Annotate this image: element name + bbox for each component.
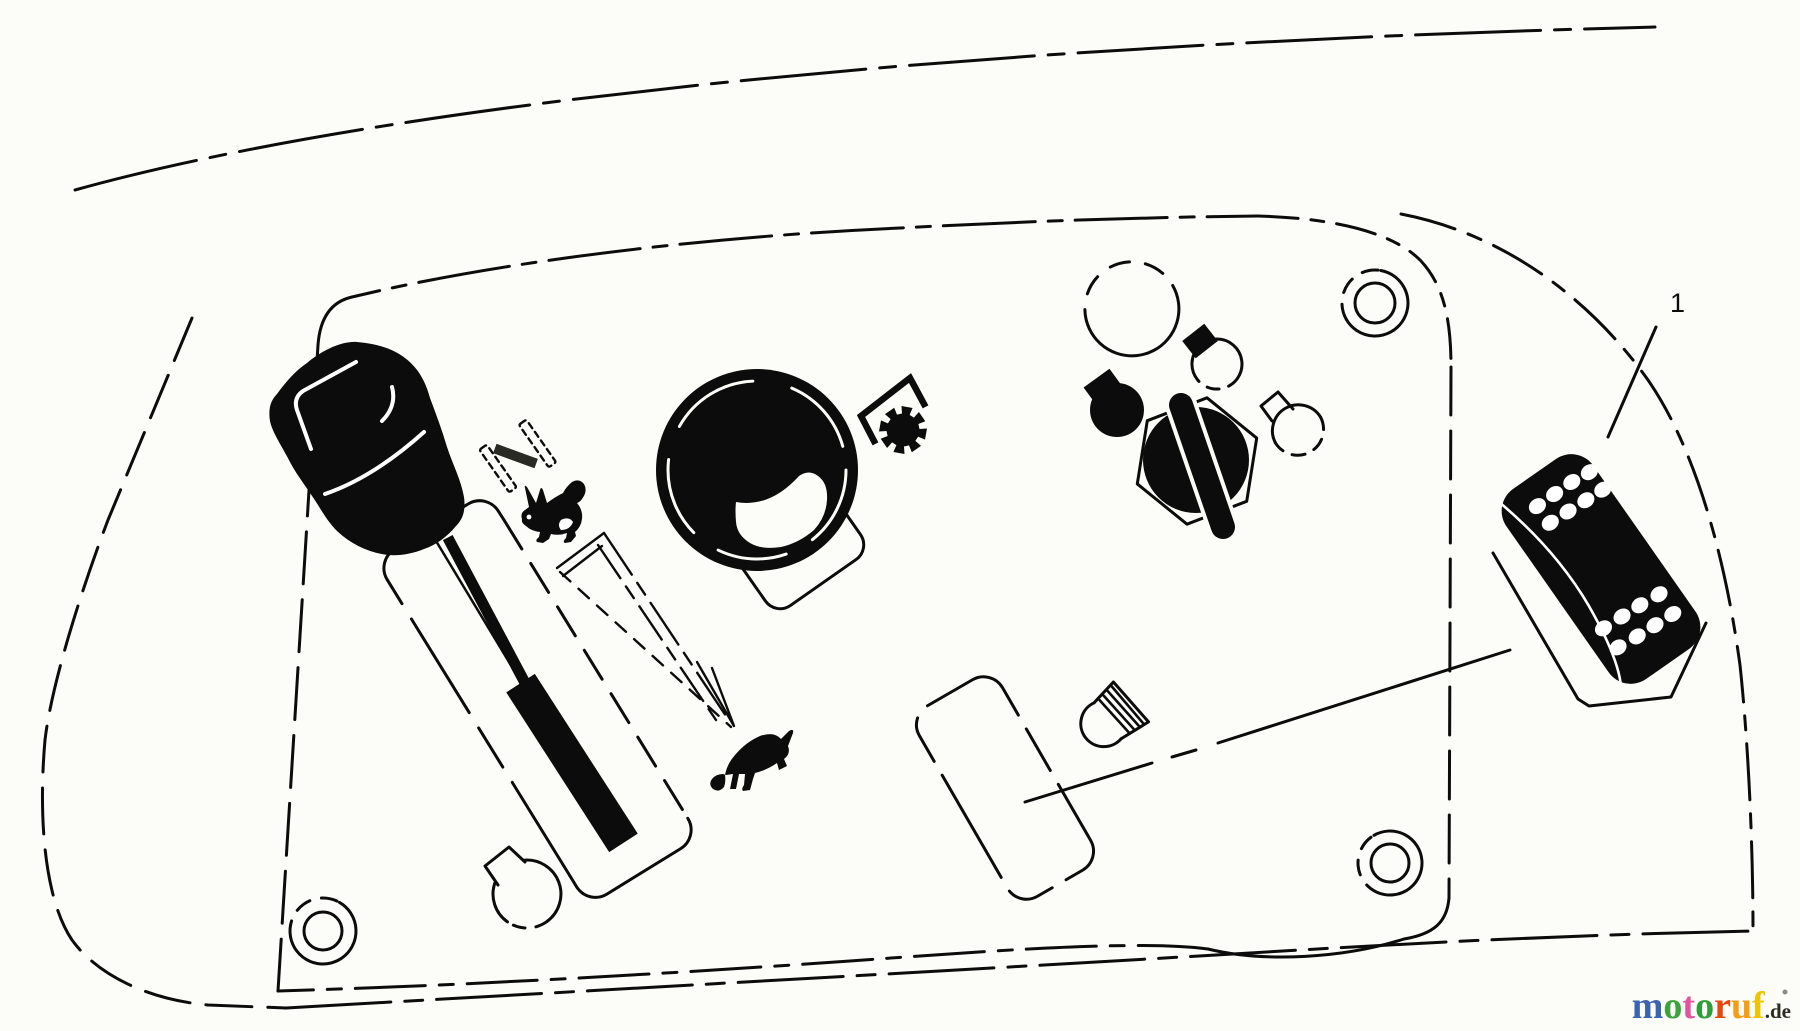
svg-text:1: 1 [1670,288,1685,318]
